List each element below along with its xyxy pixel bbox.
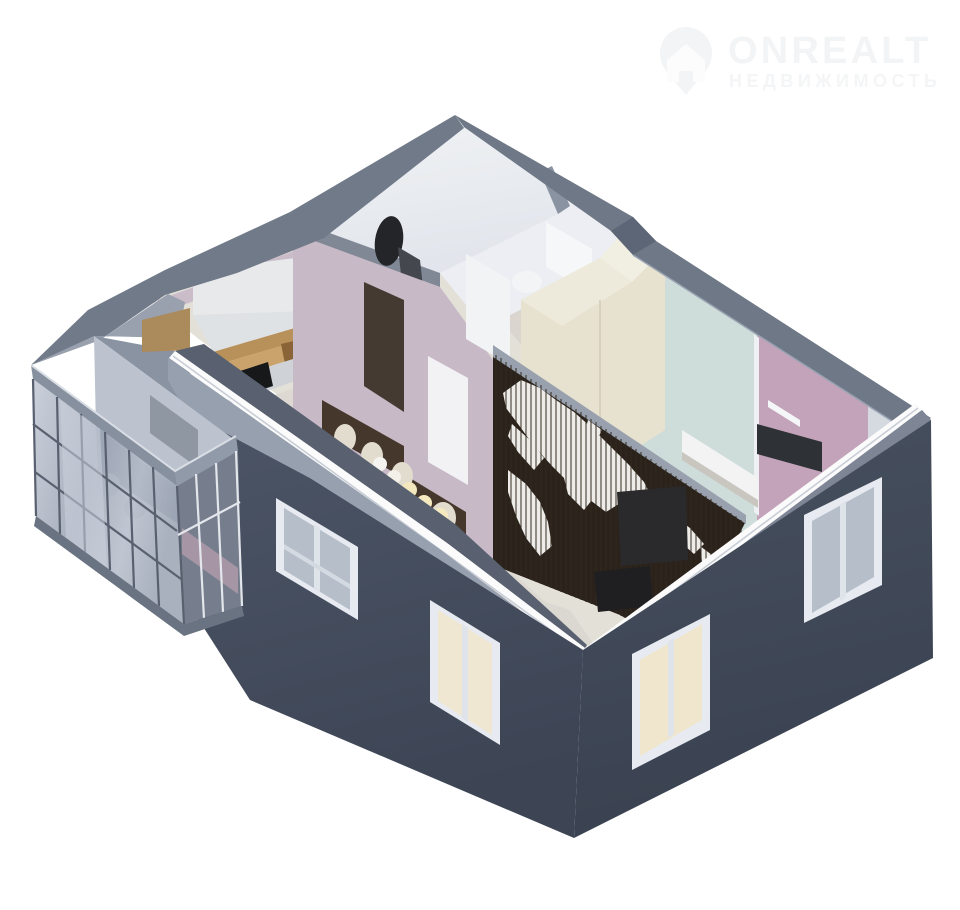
svg-text:ONREALT: ONREALT (728, 30, 931, 72)
svg-text:НЕДВИЖИМОСТЬ: НЕДВИЖИМОСТЬ (729, 71, 941, 91)
